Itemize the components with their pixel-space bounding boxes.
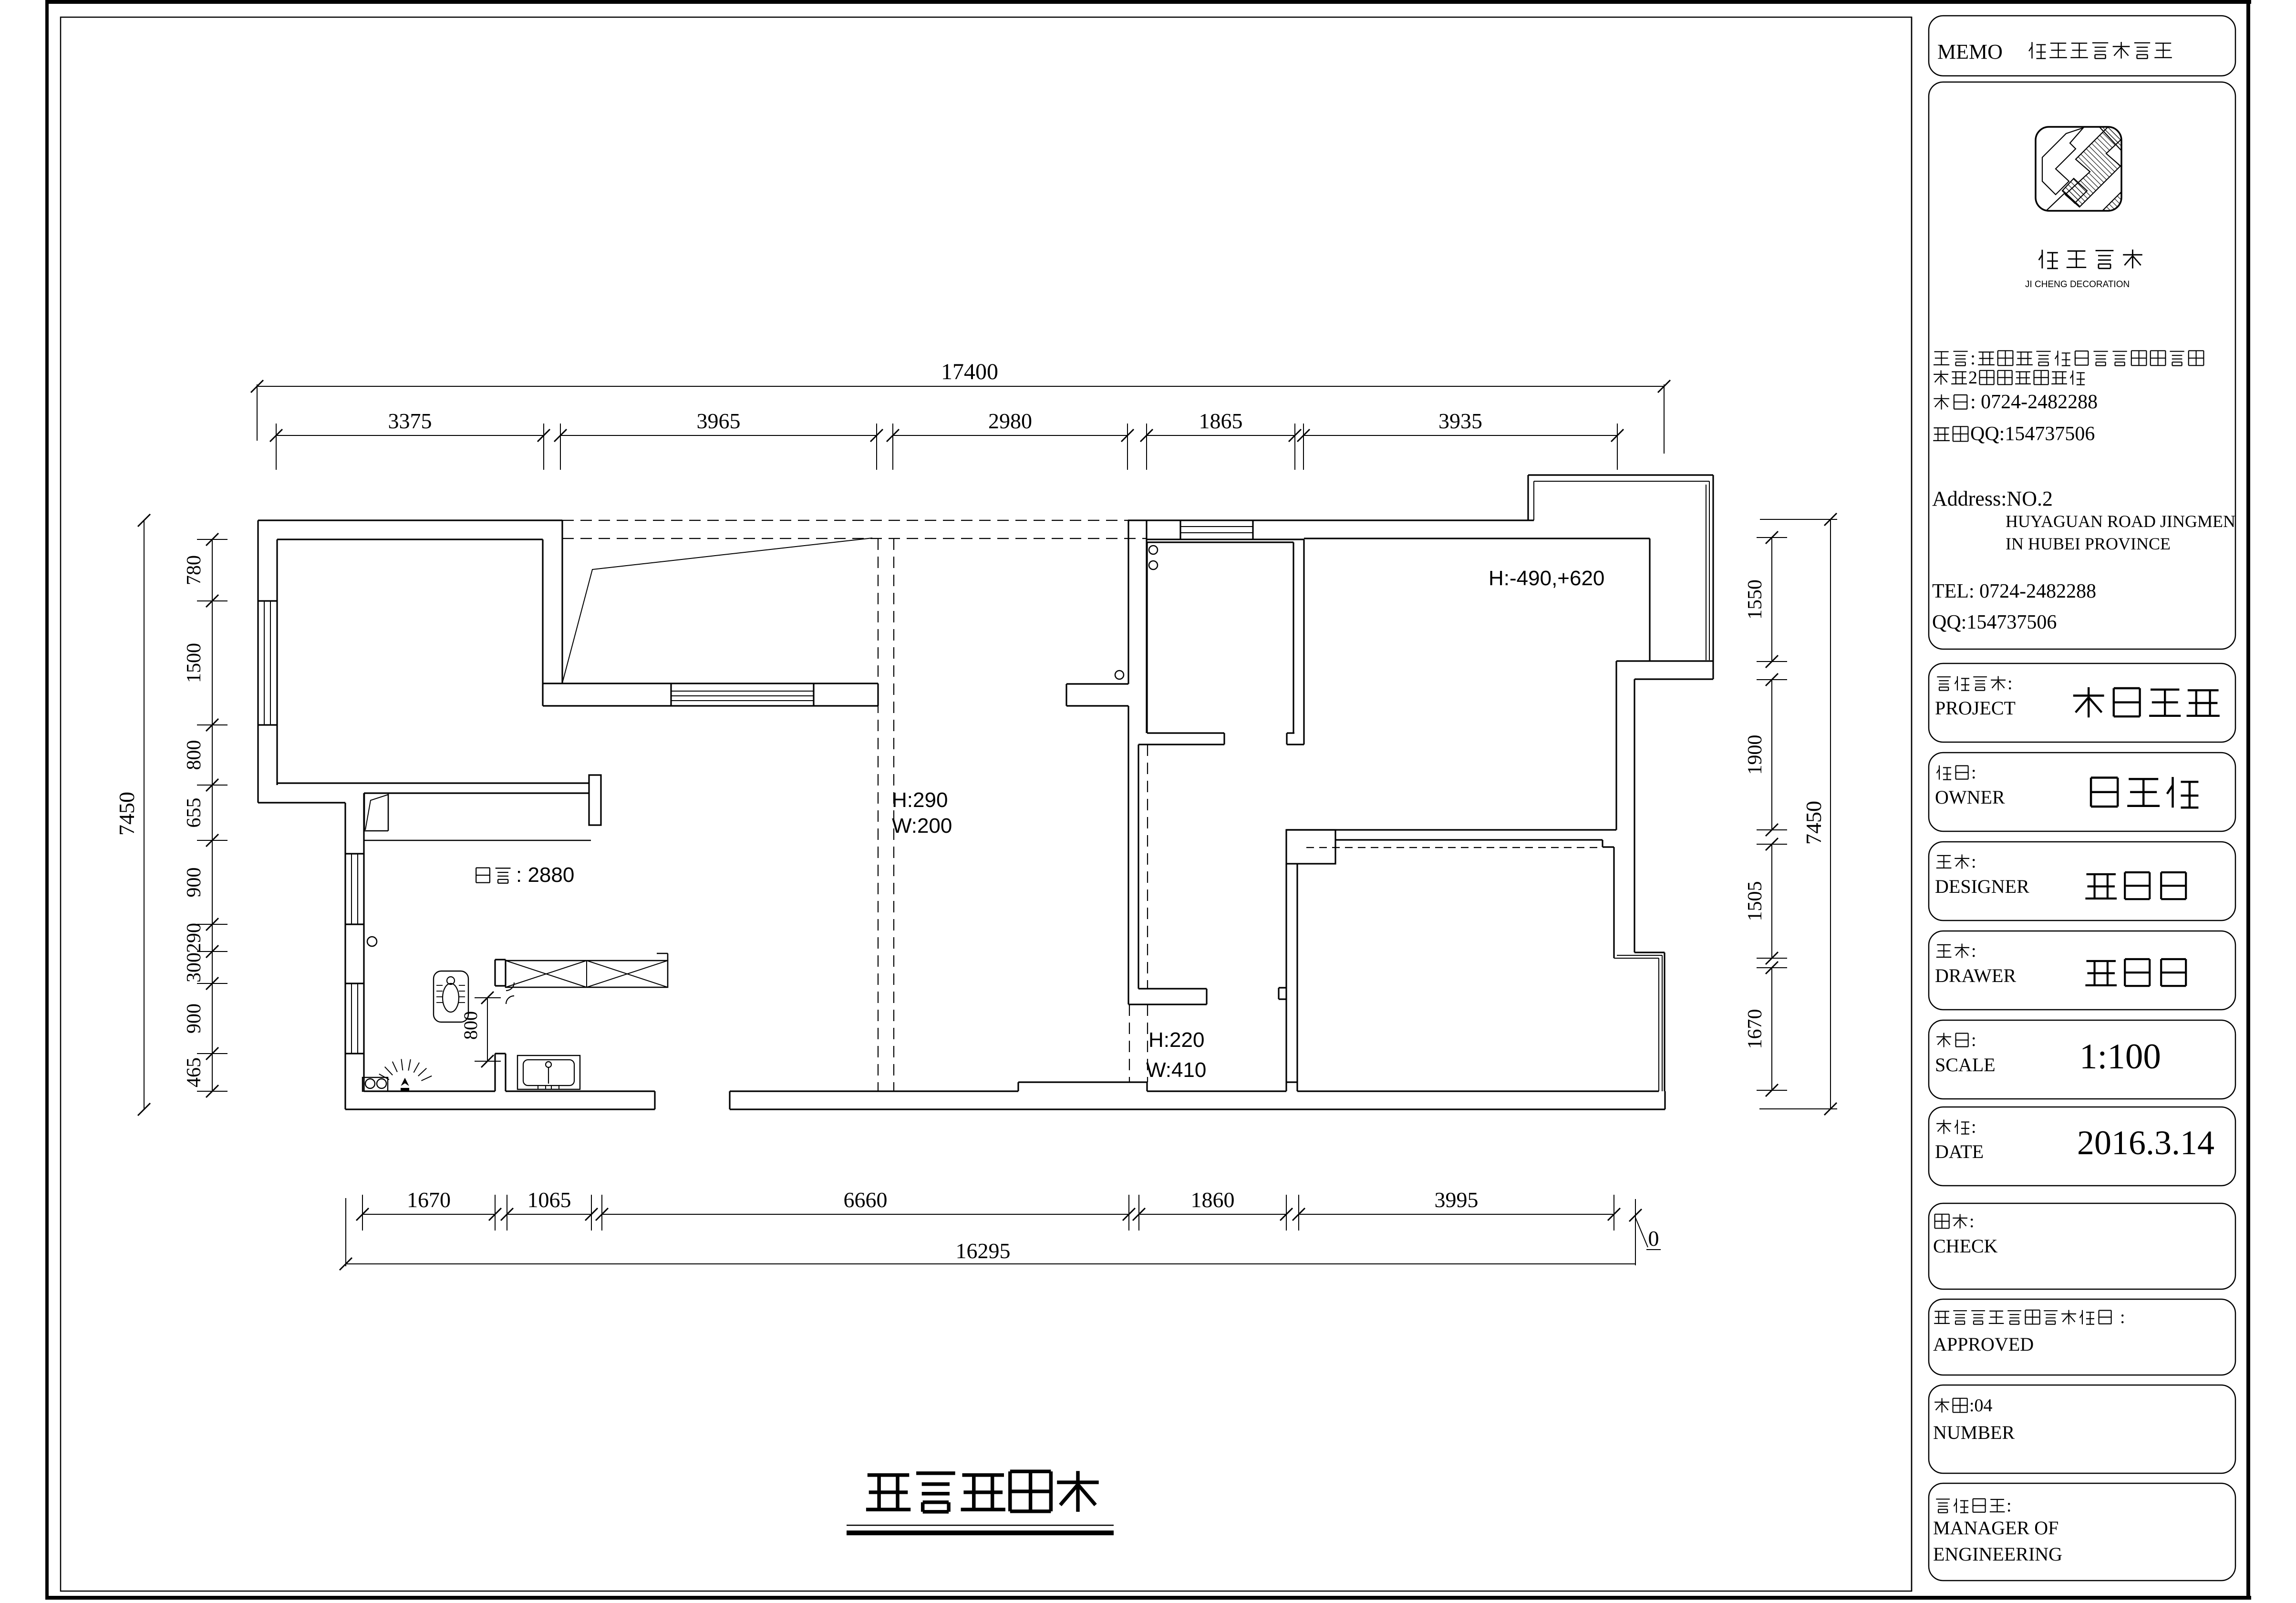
svg-text:IN HUBEI PROVINCE: IN HUBEI PROVINCE [2006, 534, 2171, 553]
svg-text:1500: 1500 [183, 643, 205, 683]
svg-text:1505: 1505 [1744, 881, 1766, 921]
svg-text::: : [1971, 763, 1976, 783]
svg-text:1860: 1860 [1191, 1188, 1235, 1212]
svg-text:1:100: 1:100 [2079, 1037, 2161, 1076]
svg-text:1065: 1065 [527, 1188, 571, 1212]
svg-text:MEMO: MEMO [1937, 40, 2003, 63]
svg-text:SCALE: SCALE [1935, 1054, 1996, 1076]
svg-text:7450: 7450 [114, 792, 139, 836]
svg-text::: : [2006, 1496, 2012, 1516]
svg-text::: : [2007, 673, 2013, 693]
svg-text:290: 290 [183, 923, 205, 953]
svg-text:1900: 1900 [1744, 735, 1766, 775]
svg-text:DESIGNER: DESIGNER [1935, 876, 2029, 897]
svg-text:3965: 3965 [697, 409, 741, 433]
svg-text:DATE: DATE [1935, 1141, 1984, 1162]
svg-text:3375: 3375 [388, 409, 432, 433]
svg-text:2016.3.14: 2016.3.14 [2077, 1124, 2214, 1162]
svg-text:: 2880: : 2880 [516, 863, 574, 887]
svg-text:1670: 1670 [407, 1188, 451, 1212]
svg-text:QQ:154737506: QQ:154737506 [1932, 611, 2057, 633]
svg-text:300: 300 [183, 952, 205, 982]
svg-text:6660: 6660 [844, 1188, 888, 1212]
svg-text:: 0724-2482288: : 0724-2482288 [1970, 391, 2098, 413]
svg-text:800: 800 [183, 740, 205, 770]
svg-text:QQ:154737506: QQ:154737506 [1970, 423, 2095, 445]
svg-text::: : [1971, 852, 1976, 872]
svg-text:OWNER: OWNER [1935, 786, 2005, 808]
svg-text:NUMBER: NUMBER [1933, 1422, 2015, 1443]
svg-text:780: 780 [183, 555, 205, 585]
svg-text:TEL: 0724-2482288: TEL: 0724-2482288 [1932, 580, 2096, 602]
svg-text:17400: 17400 [941, 359, 998, 384]
svg-text:655: 655 [183, 798, 205, 828]
svg-text::: : [1971, 941, 1976, 961]
svg-text:PROJECT: PROJECT [1935, 697, 2016, 719]
svg-text:H:290: H:290 [892, 788, 948, 812]
svg-text:2: 2 [1968, 368, 1977, 388]
svg-text:H:220: H:220 [1148, 1028, 1204, 1052]
svg-text:W:410: W:410 [1146, 1058, 1206, 1082]
svg-text::: : [2120, 1307, 2125, 1327]
svg-text::: : [1969, 1211, 1975, 1231]
svg-text:HUYAGUAN ROAD JINGMEN: HUYAGUAN ROAD JINGMEN [2006, 512, 2235, 531]
svg-text:0: 0 [1648, 1226, 1659, 1251]
svg-text:W:200: W:200 [892, 814, 952, 838]
svg-text:APPROVED: APPROVED [1933, 1334, 2034, 1355]
svg-text:MANAGER OF: MANAGER OF [1933, 1517, 2058, 1539]
svg-text:3935: 3935 [1438, 409, 1482, 433]
svg-text:3995: 3995 [1435, 1188, 1479, 1212]
svg-text::04: :04 [1969, 1396, 1993, 1416]
svg-text:16295: 16295 [956, 1239, 1011, 1263]
svg-text:Address:NO.2: Address:NO.2 [1932, 487, 2053, 510]
svg-text::: : [1971, 1030, 1976, 1050]
svg-text:CHECK: CHECK [1933, 1235, 1998, 1257]
svg-text:ENGINEERING: ENGINEERING [1933, 1543, 2062, 1565]
svg-text:1865: 1865 [1199, 409, 1243, 433]
svg-text:800: 800 [460, 1011, 481, 1040]
svg-text:7450: 7450 [1801, 801, 1826, 845]
svg-text:2980: 2980 [988, 409, 1032, 433]
svg-text:H:-490,+620: H:-490,+620 [1489, 567, 1604, 590]
svg-text:JI CHENG DECORATION: JI CHENG DECORATION [2025, 279, 2130, 290]
svg-text::: : [1971, 1117, 1976, 1137]
svg-text:900: 900 [183, 1003, 205, 1034]
svg-text:DRAWER: DRAWER [1935, 965, 2016, 986]
svg-text:465: 465 [183, 1057, 205, 1087]
svg-text::: : [1970, 347, 1975, 369]
svg-text:1550: 1550 [1744, 579, 1766, 620]
svg-text:1670: 1670 [1744, 1009, 1766, 1049]
svg-text:900: 900 [183, 868, 205, 898]
